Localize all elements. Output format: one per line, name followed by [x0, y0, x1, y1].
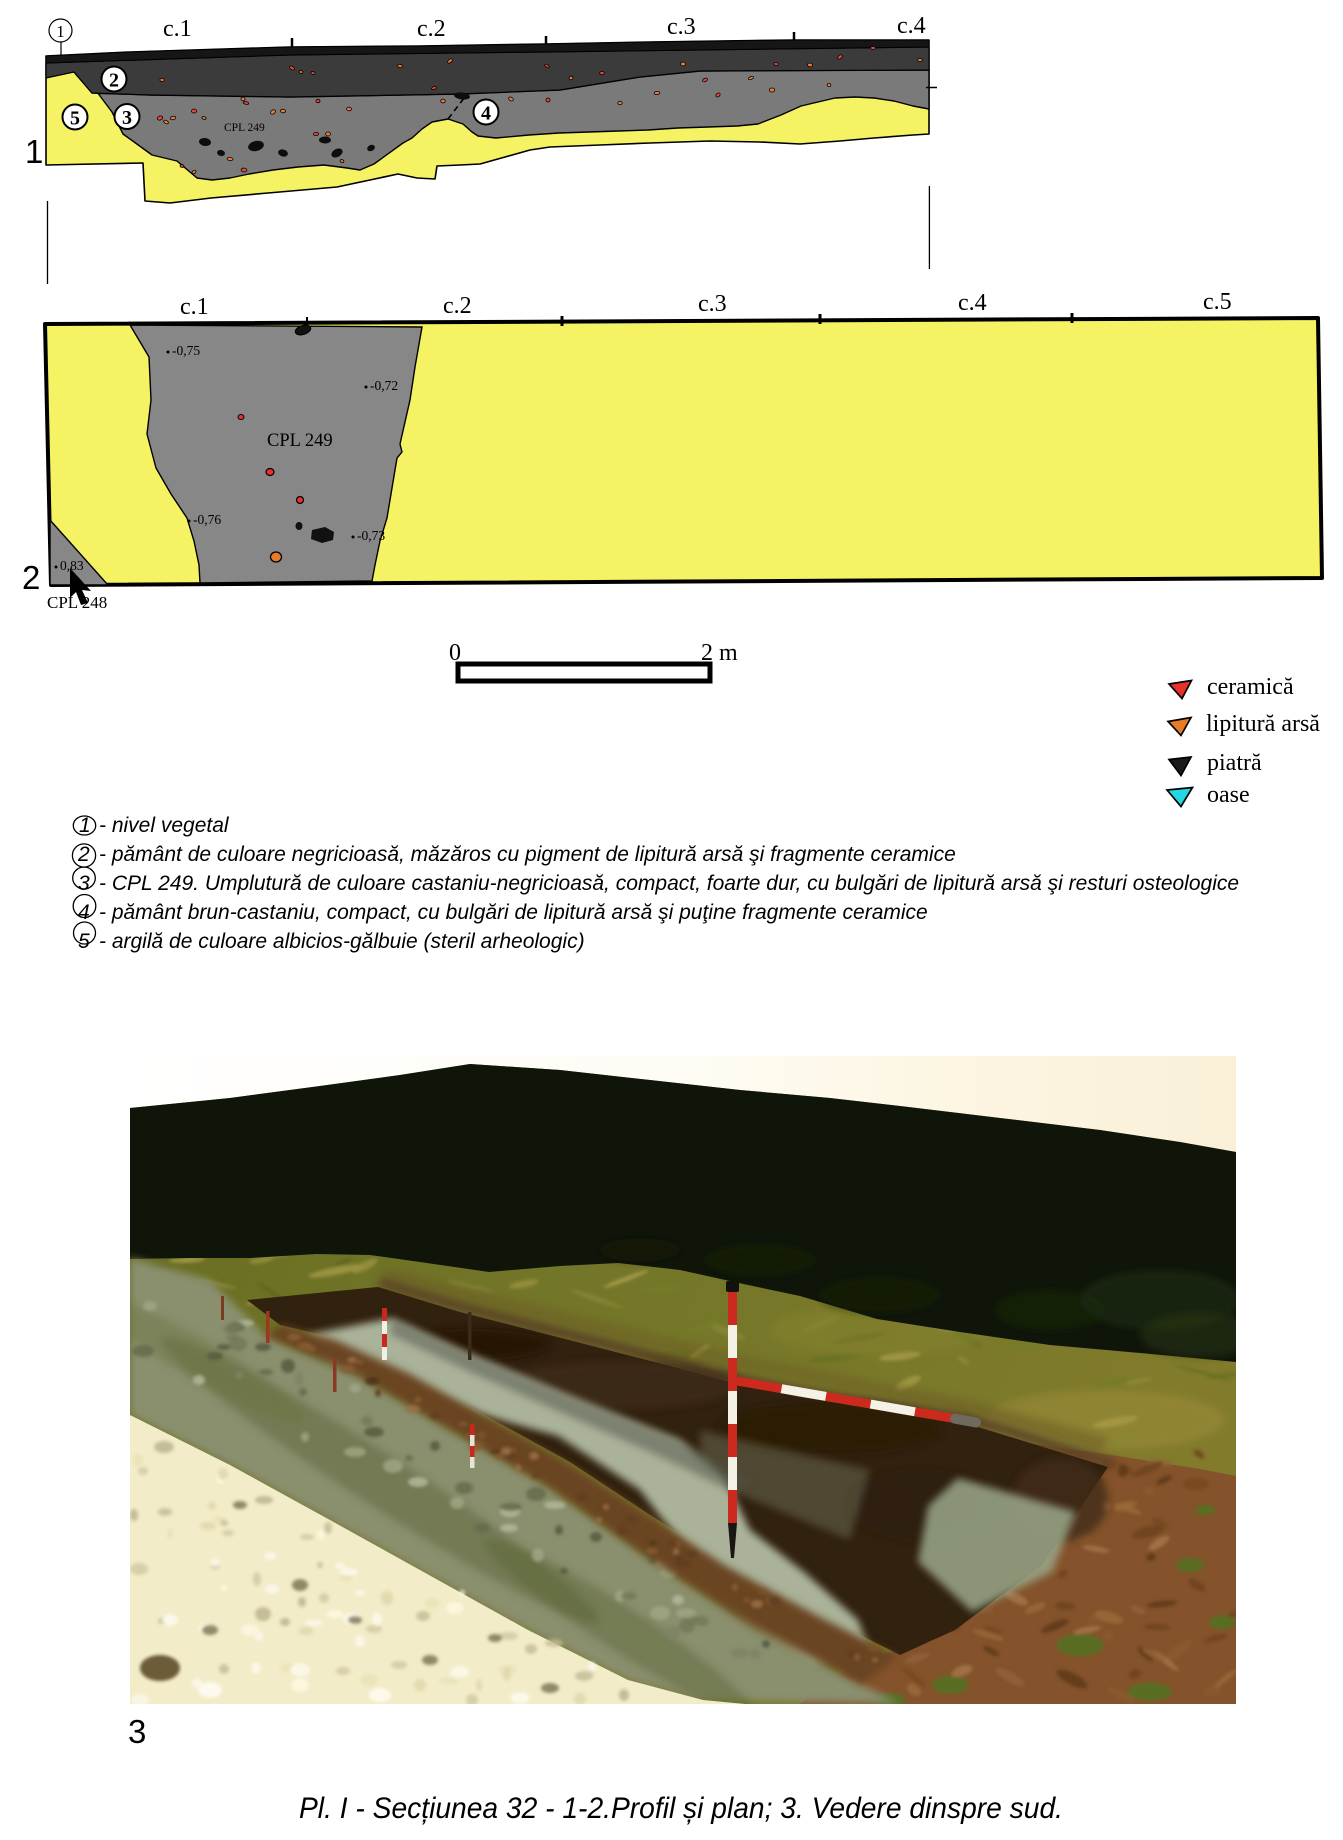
svg-text:4: 4	[481, 103, 491, 125]
svg-text:0: 0	[449, 640, 461, 666]
svg-text:1: 1	[79, 814, 91, 837]
svg-text:1: 1	[56, 22, 65, 41]
svg-text:2: 2	[77, 843, 90, 866]
svg-text:2: 2	[109, 70, 119, 92]
svg-text:piatră: piatră	[1207, 750, 1262, 776]
svg-text:2 m: 2 m	[701, 640, 738, 666]
svg-text:4: 4	[78, 901, 90, 924]
svg-text:- pământ de culoare negricioas: - pământ de culoare negricioasă, măzăros…	[99, 843, 956, 866]
svg-text:- nivel vegetal: - nivel vegetal	[99, 814, 230, 837]
svg-text:0,83: 0,83	[60, 558, 84, 573]
svg-text:-0,72: -0,72	[370, 378, 398, 393]
svg-text:c.3: c.3	[667, 14, 696, 40]
svg-text:CPL 249: CPL 249	[267, 431, 333, 451]
svg-text:3: 3	[128, 1713, 146, 1750]
svg-text:- pământ brun-castaniu, compac: - pământ brun-castaniu, compact, cu bulg…	[99, 901, 928, 924]
svg-text:- argilă de culoare albicios-g: - argilă de culoare albicios-gălbuie (st…	[99, 930, 585, 953]
svg-text:-0,76: -0,76	[193, 512, 221, 527]
svg-text:c.4: c.4	[897, 13, 926, 39]
svg-text:5: 5	[78, 930, 90, 953]
svg-text:ceramică: ceramică	[1207, 674, 1294, 700]
svg-text:c.2: c.2	[417, 16, 446, 42]
svg-text:CPL 248: CPL 248	[47, 593, 107, 612]
svg-text:c.1: c.1	[163, 16, 192, 42]
svg-text:3: 3	[78, 872, 90, 895]
svg-text:c.3: c.3	[698, 291, 727, 317]
svg-text:- CPL 249. Umplutură de culoar: - CPL 249. Umplutură de culoare castaniu…	[99, 872, 1239, 895]
svg-text:c.1: c.1	[180, 294, 209, 320]
svg-text:c.4: c.4	[958, 290, 987, 316]
svg-text:c.5: c.5	[1203, 289, 1232, 315]
svg-text:CPL 249: CPL 249	[224, 122, 265, 134]
svg-text:1: 1	[25, 133, 43, 170]
svg-text:oase: oase	[1207, 782, 1250, 808]
svg-text:3: 3	[122, 107, 132, 129]
svg-text:2: 2	[22, 559, 40, 596]
svg-text:-0,75: -0,75	[172, 343, 200, 358]
svg-text:5: 5	[70, 108, 80, 130]
svg-text:Pl. I - Secțiunea 32 - 1-2.Pro: Pl. I - Secțiunea 32 - 1-2.Profil și pla…	[299, 1792, 1063, 1825]
svg-text:-0,73: -0,73	[357, 528, 385, 543]
svg-text:lipitură arsă: lipitură arsă	[1206, 711, 1320, 737]
svg-text:c.2: c.2	[443, 293, 472, 319]
